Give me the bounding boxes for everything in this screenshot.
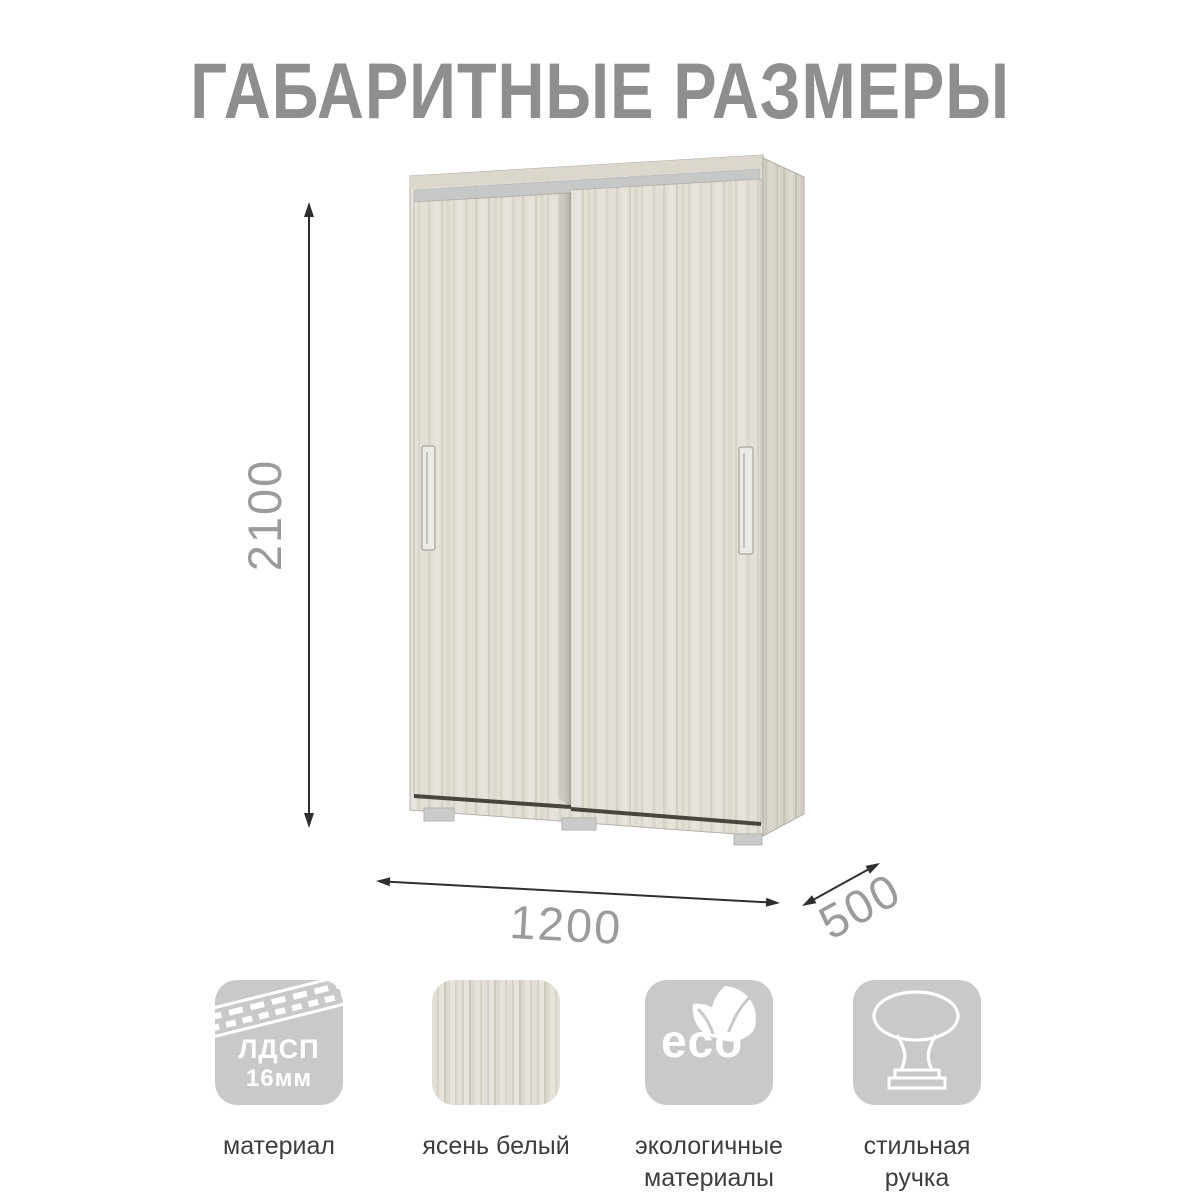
feature-caption-eco: экологичные материалы <box>589 1130 829 1194</box>
wardrobe-foot <box>734 834 762 845</box>
handle-knob-icon <box>853 980 981 1105</box>
wardrobe-foot <box>562 818 596 830</box>
feature-caption-handle: стильная ручка <box>797 1130 1037 1194</box>
feature-caption-color: ясень белый <box>376 1130 616 1162</box>
eco-icon-label: eco <box>645 1014 773 1068</box>
wardrobe-illustration: 2100 1200 500 <box>0 0 1200 1200</box>
wardrobe-left-door <box>414 193 571 807</box>
door-gap-shadow <box>556 193 571 807</box>
width-dimension-label: 1200 <box>508 895 623 954</box>
wood-swatch-icon <box>432 980 560 1105</box>
feature-tile-material: ЛДСП 16мм <box>215 980 343 1105</box>
wardrobe-right-door <box>571 179 761 824</box>
height-dimension-line <box>304 202 314 828</box>
wardrobe-foot <box>424 808 454 821</box>
product-dimensions-figure: ГАБАРИТНЫЕ РАЗМЕРЫ <box>0 0 1200 1200</box>
height-dimension-label: 2100 <box>238 459 291 572</box>
chipboard-icon-label: ЛДСП 16мм <box>215 1034 343 1094</box>
left-door-handle <box>422 446 435 550</box>
wardrobe-side-panel <box>763 158 804 836</box>
right-door-handle <box>739 447 753 554</box>
depth-dimension-label: 500 <box>810 862 910 949</box>
feature-tile-eco: eco <box>645 980 773 1105</box>
feature-caption-material: материал <box>159 1130 399 1162</box>
feature-tile-handle <box>853 980 981 1105</box>
